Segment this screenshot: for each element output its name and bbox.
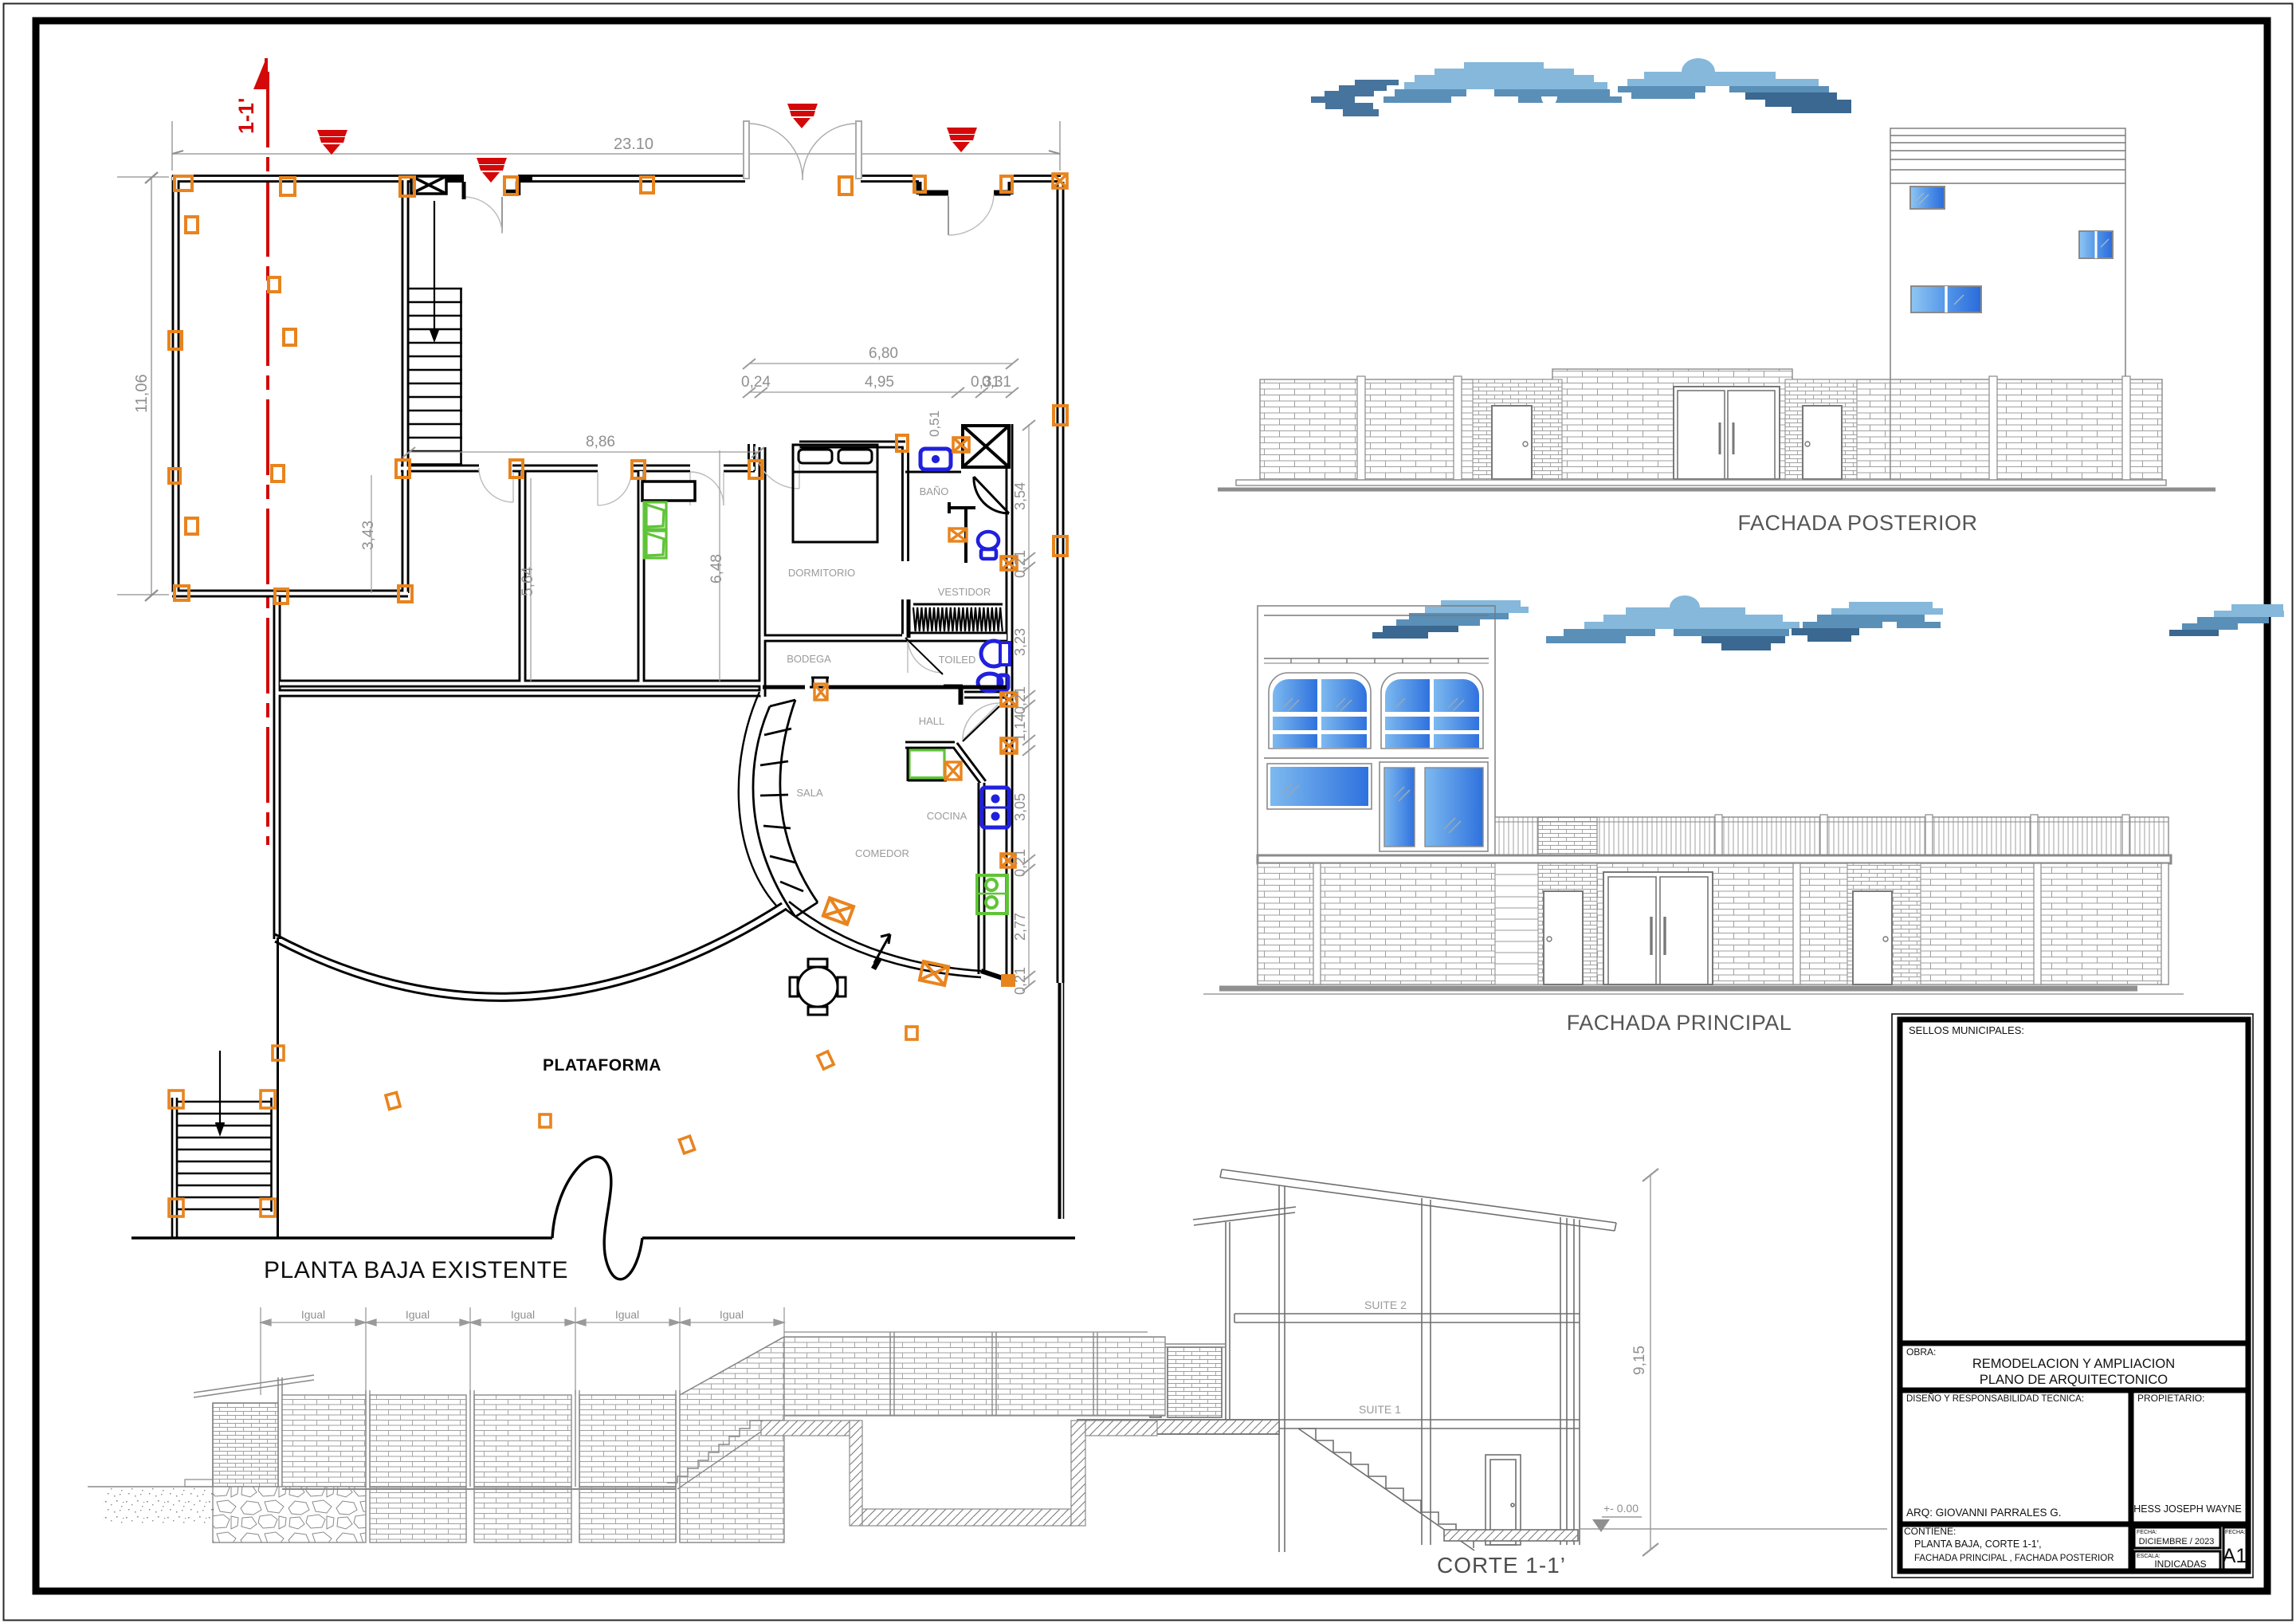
svg-text:0,51: 0,51 — [927, 411, 942, 437]
svg-text:SELLOS MUNICIPALES:: SELLOS MUNICIPALES: — [1909, 1024, 2024, 1036]
svg-text:5,64: 5,64 — [520, 567, 536, 596]
svg-text:FACHADA PRINCIPAL , FACHADA PO: FACHADA PRINCIPAL , FACHADA POSTERIOR — [1914, 1554, 2114, 1563]
svg-text:VESTIDOR: VESTIDOR — [938, 586, 991, 598]
svg-text:COMEDOR: COMEDOR — [855, 847, 909, 859]
svg-text:6,48: 6,48 — [708, 554, 725, 584]
svg-text:Igual: Igual — [511, 1308, 535, 1321]
svg-text:8,86: 8,86 — [586, 434, 615, 450]
svg-text:PROPIETARIO:: PROPIETARIO: — [2137, 1393, 2204, 1404]
svg-text:SUITE 1: SUITE 1 — [1359, 1403, 1401, 1416]
svg-text:0,21: 0,21 — [1012, 686, 1028, 714]
svg-text:Igual: Igual — [301, 1308, 325, 1321]
svg-text:0,21: 0,21 — [1012, 967, 1028, 995]
svg-text:PLATAFORMA: PLATAFORMA — [543, 1056, 661, 1075]
svg-text:REMODELACION Y AMPLIACION: REMODELACION Y AMPLIACION — [1972, 1357, 2175, 1371]
svg-text:6,80: 6,80 — [869, 345, 898, 362]
svg-text:FECHA:: FECHA: — [2137, 1530, 2157, 1535]
svg-text:PLANO DE ARQUITECTONICO: PLANO DE ARQUITECTONICO — [1980, 1373, 2168, 1387]
svg-text:BAÑO: BAÑO — [920, 485, 949, 497]
svg-text:+- 0.00: +- 0.00 — [1603, 1502, 1639, 1515]
svg-text:4,95: 4,95 — [865, 374, 894, 391]
svg-text:3,23: 3,23 — [1012, 628, 1028, 656]
svg-text:Igual: Igual — [406, 1308, 430, 1321]
svg-text:BODEGA: BODEGA — [787, 653, 831, 665]
svg-text:0,21: 0,21 — [1012, 550, 1028, 578]
svg-text:1-1': 1-1' — [234, 98, 258, 134]
svg-text:23.10: 23.10 — [614, 136, 653, 153]
svg-text:PLANTA BAJA EXISTENTE: PLANTA BAJA EXISTENTE — [264, 1257, 568, 1283]
svg-text:INDICADAS: INDICADAS — [2154, 1558, 2206, 1570]
svg-text:DISEÑO Y RESPONSABILIDAD TECNI: DISEÑO Y RESPONSABILIDAD TECNICA: — [1906, 1393, 2084, 1404]
svg-text:COCINA: COCINA — [927, 810, 967, 822]
svg-text:A1: A1 — [2223, 1545, 2247, 1567]
svg-text:OBRA:: OBRA: — [1906, 1346, 1936, 1358]
svg-text:1,14: 1,14 — [1012, 713, 1028, 741]
svg-text:CONTIENE:: CONTIENE: — [1904, 1526, 1956, 1537]
svg-text:DORMITORIO: DORMITORIO — [788, 567, 855, 579]
svg-text:SUITE 2: SUITE 2 — [1364, 1299, 1407, 1311]
svg-text:FECHA:: FECHA: — [2225, 1530, 2246, 1535]
svg-text:PLANTA BAJA, CORTE 1-1',: PLANTA BAJA, CORTE 1-1', — [1914, 1539, 2042, 1550]
svg-text:Igual: Igual — [615, 1308, 639, 1321]
svg-text:HESS JOSEPH WAYNE: HESS JOSEPH WAYNE — [2133, 1503, 2241, 1515]
svg-text:11,06: 11,06 — [133, 374, 151, 413]
svg-text:2,77: 2,77 — [1012, 913, 1028, 941]
svg-text:HALL: HALL — [919, 715, 945, 727]
svg-text:ARQ: GIOVANNI PARRALES G.: ARQ: GIOVANNI PARRALES G. — [1906, 1507, 2062, 1519]
svg-text:FACHADA POSTERIOR: FACHADA POSTERIOR — [1737, 511, 1977, 535]
svg-text:3,54: 3,54 — [1012, 482, 1028, 510]
svg-text:9,15: 9,15 — [1631, 1346, 1648, 1375]
svg-text:CORTE 1-1’: CORTE 1-1’ — [1437, 1553, 1566, 1578]
svg-text:DICIEMBRE / 2023: DICIEMBRE / 2023 — [2139, 1537, 2215, 1546]
svg-text:3,05: 3,05 — [1012, 793, 1028, 821]
svg-text:FACHADA PRINCIPAL: FACHADA PRINCIPAL — [1567, 1011, 1792, 1035]
svg-text:TOILED: TOILED — [939, 654, 976, 666]
svg-text:SALA: SALA — [796, 787, 823, 799]
svg-text:Igual: Igual — [720, 1308, 744, 1321]
svg-text:3,43: 3,43 — [360, 521, 377, 550]
